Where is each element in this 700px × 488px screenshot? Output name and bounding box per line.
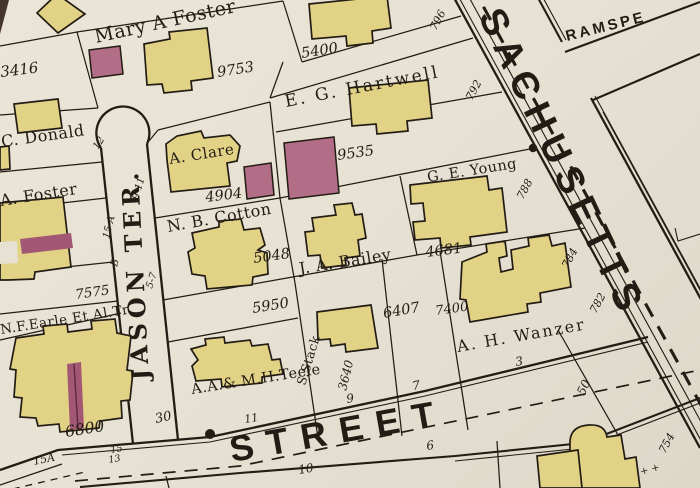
house-number-13: 13	[108, 453, 122, 466]
atlas-map: SACHUSETTS STREET JASON TER. RAMSPE Mary…	[0, 0, 700, 488]
frontage-number-9: 9	[345, 391, 355, 406]
building-polygon	[144, 28, 213, 93]
parcel-line	[497, 441, 500, 488]
building-pink-polygon	[89, 46, 123, 78]
building-pink-polygon	[284, 137, 339, 199]
parcel-line	[168, 318, 298, 342]
area-label-7575: 7575	[74, 282, 110, 303]
frontage-number-6: 6	[425, 438, 435, 453]
building-polygon	[37, 0, 85, 33]
house-number-jason-15a: 15 A	[101, 215, 117, 240]
area-label-3416: 3416	[0, 58, 40, 81]
frontage-number-7: 7	[411, 378, 421, 393]
building-polygon	[309, 0, 391, 46]
area-label-6407: 6407	[382, 300, 422, 322]
building-polygon	[317, 305, 378, 352]
parcel-line	[0, 162, 102, 172]
atlas-map-page: SACHUSETTS STREET JASON TER. RAMSPE Mary…	[0, 0, 700, 488]
house-number-jason-12: 12	[91, 135, 107, 152]
street-label-ramsdell: RAMSPE	[564, 9, 648, 45]
frontage-number-10: 10	[297, 461, 315, 477]
area-label-4681: 4681	[424, 241, 464, 262]
photo-corner-shadow	[0, 0, 9, 34]
house-number-792: 792	[463, 78, 484, 103]
street-corner-dashes	[0, 472, 85, 488]
building-notch	[0, 241, 18, 264]
building-polygon	[537, 450, 582, 488]
area-label-3640: 3640	[335, 358, 356, 391]
building-polygon	[410, 176, 507, 248]
house-number-15a: 15A	[32, 451, 56, 468]
parcel-corner-mark	[675, 228, 700, 241]
frontage-number-50: 50	[574, 377, 593, 397]
area-label-5950: 5950	[251, 295, 290, 317]
building-pink-polygon	[244, 163, 274, 199]
area-label-4904: 4904	[204, 186, 244, 207]
ramsdell-lower-edge	[593, 54, 700, 100]
cross-marks: + +	[639, 462, 661, 478]
mass-right-curb-upper	[537, 0, 562, 42]
parcel-line	[166, 476, 169, 488]
area-label-5400: 5400	[300, 40, 339, 62]
frontage-number-3: 3	[514, 354, 524, 369]
frontage-number-11: 11	[243, 411, 259, 426]
house-number-754: 754	[656, 431, 677, 456]
trolley-stop-dot	[205, 429, 215, 439]
parcel-line	[283, 1, 302, 62]
mass-right-curb-upper-inner	[541, 0, 566, 40]
area-label-9753: 9753	[216, 59, 255, 81]
building-polygon	[460, 235, 571, 322]
area-label-7400: 7400	[434, 300, 469, 319]
parcel-line	[158, 102, 270, 130]
owner-label-s-stack: S.Stack	[294, 334, 323, 387]
frontage-number-30: 30	[154, 409, 173, 427]
parcel-line	[270, 62, 283, 98]
house-number-788: 788	[514, 177, 535, 202]
area-label-9535: 9535	[336, 143, 375, 164]
